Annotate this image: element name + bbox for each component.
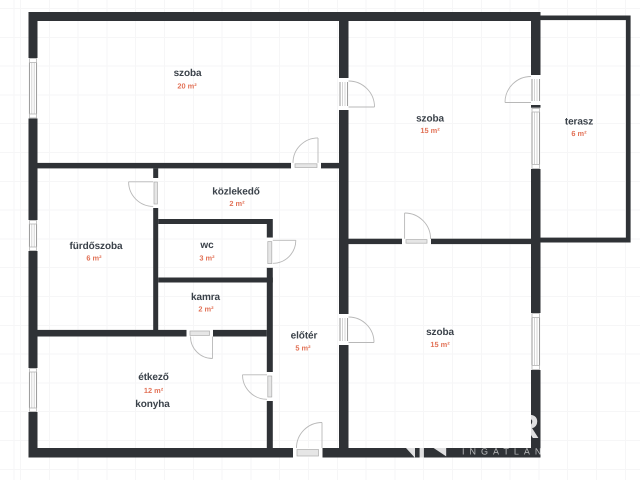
- svg-text:szoba: szoba: [426, 327, 454, 338]
- svg-text:12 m²: 12 m²: [144, 386, 164, 395]
- svg-text:15 m²: 15 m²: [420, 126, 440, 135]
- svg-text:előtér: előtér: [291, 331, 318, 342]
- svg-text:2 m²: 2 m²: [198, 305, 214, 314]
- svg-text:kamra: kamra: [191, 292, 221, 303]
- svg-text:étkező: étkező: [138, 372, 169, 383]
- svg-text:15 m²: 15 m²: [430, 340, 450, 349]
- svg-text:wc: wc: [199, 240, 214, 251]
- svg-text:6 m²: 6 m²: [571, 129, 587, 138]
- svg-text:INGATLAN.C: INGATLAN.C: [462, 447, 565, 457]
- svg-text:közlekedő: közlekedő: [212, 187, 259, 198]
- svg-text:3 m²: 3 m²: [199, 254, 215, 263]
- svg-text:6 m²: 6 m²: [86, 253, 102, 262]
- svg-text:20 m²: 20 m²: [177, 82, 197, 91]
- svg-text:konyha: konyha: [135, 399, 170, 410]
- svg-text:fürdőszoba: fürdőszoba: [70, 241, 123, 252]
- svg-text:R: R: [514, 408, 539, 446]
- svg-text:5 m²: 5 m²: [295, 344, 311, 353]
- svg-text:terasz: terasz: [565, 117, 593, 128]
- svg-text:szoba: szoba: [416, 114, 444, 125]
- svg-text:szoba: szoba: [174, 68, 202, 79]
- svg-text:2 m²: 2 m²: [229, 199, 245, 208]
